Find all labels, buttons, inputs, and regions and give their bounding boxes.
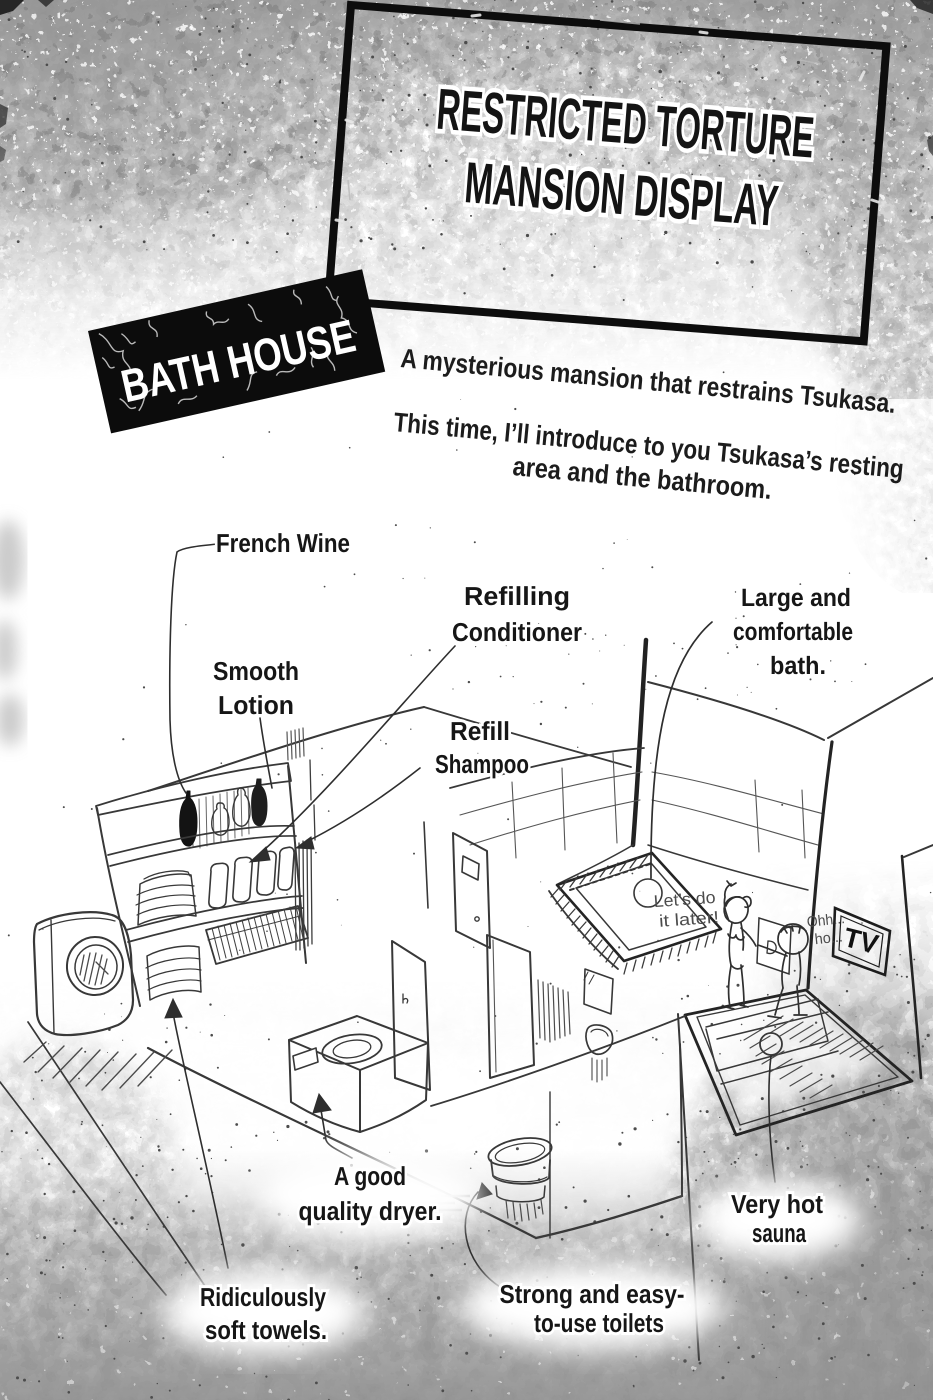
svg-text:Shampoo: Shampoo <box>435 749 529 779</box>
svg-text:French Wine: French Wine <box>216 528 350 558</box>
svg-text:bath.: bath. <box>770 652 826 680</box>
svg-text:Conditioner: Conditioner <box>452 617 582 647</box>
svg-text:Lotion: Lotion <box>218 690 294 720</box>
svg-text:Strong and easy-: Strong and easy- <box>500 1279 685 1309</box>
svg-text:Smooth: Smooth <box>213 656 299 686</box>
svg-text:Refilling: Refilling <box>464 581 570 611</box>
svg-text:Large and: Large and <box>741 584 851 612</box>
svg-text:sauna: sauna <box>752 1218 806 1248</box>
svg-text:A good: A good <box>334 1161 406 1191</box>
svg-text:quality dryer.: quality dryer. <box>299 1196 442 1226</box>
svg-text:to-use toilets: to-use toilets <box>534 1308 664 1338</box>
svg-text:ho...: ho... <box>814 928 844 948</box>
svg-text:Ridiculously: Ridiculously <box>200 1282 326 1312</box>
svg-text:Very hot: Very hot <box>731 1189 823 1219</box>
svg-text:comfortable: comfortable <box>733 618 853 646</box>
svg-text:Refill: Refill <box>450 716 510 746</box>
svg-text:soft towels.: soft towels. <box>205 1315 327 1345</box>
